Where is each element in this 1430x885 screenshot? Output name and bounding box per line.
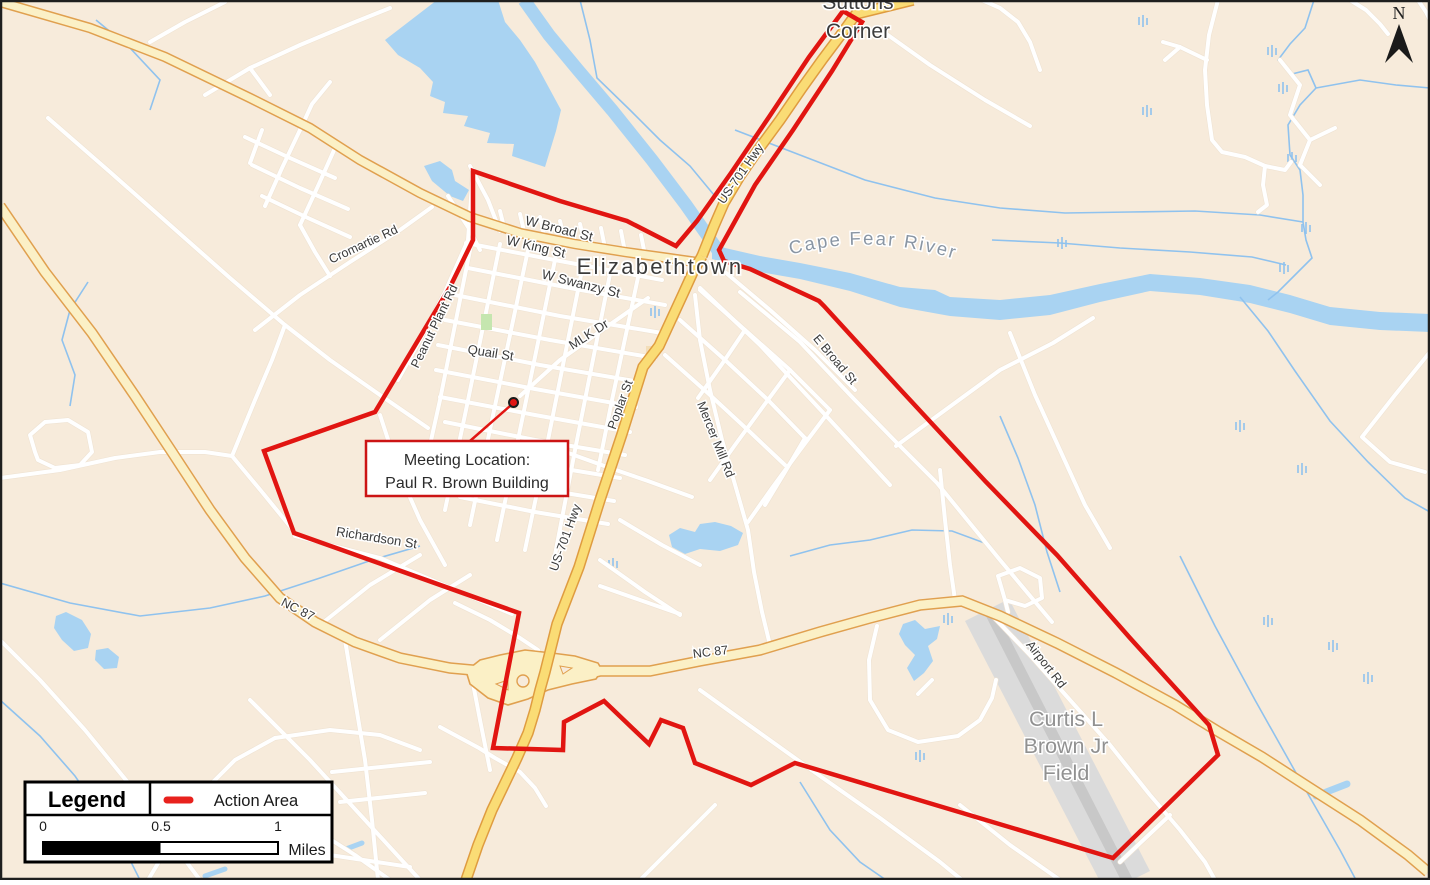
svg-text:Action Area: Action Area — [214, 792, 299, 810]
svg-text:Corner: Corner — [826, 20, 890, 43]
svg-text:Elizabethtown: Elizabethtown — [577, 254, 744, 279]
svg-text:0.5: 0.5 — [151, 818, 171, 834]
svg-text:N: N — [1393, 3, 1406, 23]
svg-text:0: 0 — [39, 818, 47, 834]
svg-text:Curtis L: Curtis L — [1029, 707, 1103, 731]
svg-text:Field: Field — [1043, 761, 1090, 785]
svg-text:Paul R. Brown Building: Paul R. Brown Building — [385, 475, 549, 492]
svg-text:Brown Jr: Brown Jr — [1024, 734, 1109, 758]
svg-text:Meeting Location:: Meeting Location: — [404, 452, 530, 469]
svg-text:Legend: Legend — [48, 787, 126, 812]
svg-text:1: 1 — [274, 818, 282, 834]
svg-text:Miles: Miles — [288, 842, 325, 859]
